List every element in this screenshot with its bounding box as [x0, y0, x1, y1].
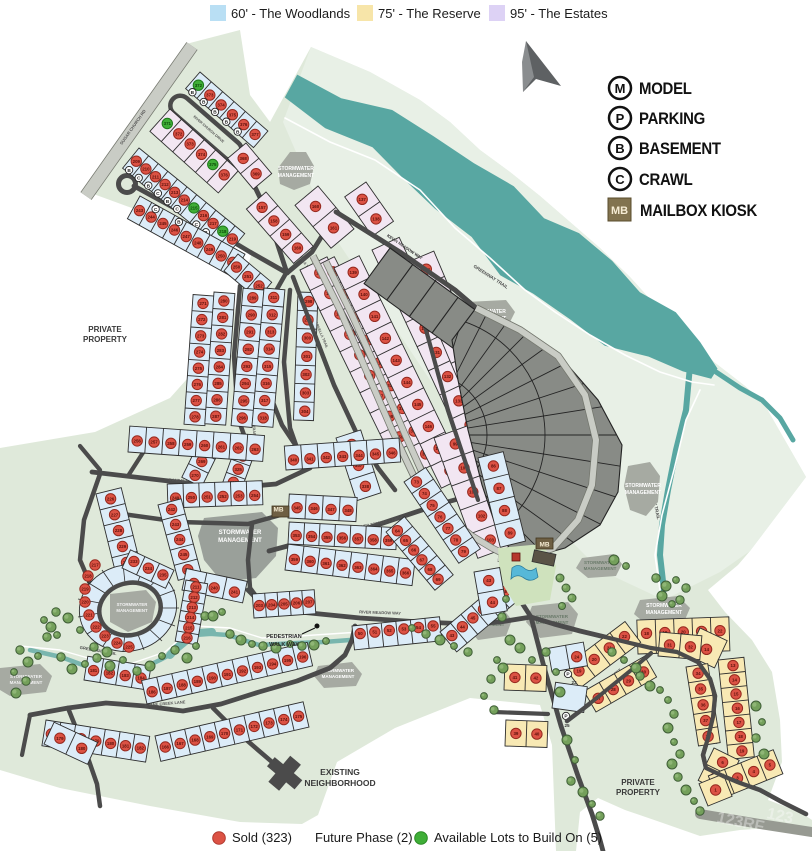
svg-text:372: 372 [175, 131, 183, 136]
svg-text:WALK WAY: WALK WAY [269, 642, 299, 648]
svg-text:36: 36 [701, 702, 706, 707]
svg-text:51: 51 [372, 630, 377, 635]
svg-text:211: 211 [192, 585, 200, 590]
svg-text:141: 141 [371, 314, 379, 319]
svg-text:344: 344 [355, 453, 363, 458]
svg-text:304: 304 [301, 409, 309, 414]
svg-text:STORMWATER: STORMWATER [219, 530, 262, 536]
svg-text:217: 217 [209, 221, 217, 226]
svg-text:275: 275 [195, 366, 203, 371]
svg-text:189: 189 [194, 679, 202, 684]
svg-text:294: 294 [242, 381, 250, 386]
svg-text:375: 375 [229, 112, 237, 117]
svg-text:212: 212 [161, 182, 169, 187]
svg-text:341: 341 [306, 456, 314, 461]
svg-text:244: 244 [176, 537, 184, 542]
svg-text:282: 282 [218, 332, 226, 337]
svg-text:342: 342 [323, 455, 331, 460]
svg-text:78: 78 [453, 538, 458, 543]
svg-text:167: 167 [176, 741, 184, 746]
svg-text:MANAGEMENT: MANAGEMENT [116, 608, 148, 613]
svg-text:287: 287 [212, 414, 220, 419]
svg-text:MANAGEMENT: MANAGEMENT [322, 674, 355, 679]
svg-text:40: 40 [534, 732, 539, 737]
svg-text:PEDESTRIAN: PEDESTRIAN [266, 634, 301, 640]
svg-text:PRIVATE: PRIVATE [88, 325, 122, 334]
svg-text:286: 286 [213, 397, 221, 402]
svg-text:357: 357 [354, 536, 362, 541]
svg-text:55: 55 [431, 624, 436, 629]
svg-text:269: 269 [198, 459, 206, 464]
svg-text:181: 181 [90, 668, 98, 673]
svg-text:175: 175 [295, 714, 303, 719]
svg-text:235: 235 [159, 573, 167, 578]
svg-text:138: 138 [372, 217, 380, 222]
svg-text:PROPERTY: PROPERTY [83, 335, 128, 344]
svg-text:346: 346 [310, 506, 318, 511]
svg-text:86: 86 [491, 464, 496, 469]
svg-text:263: 263 [251, 447, 259, 452]
svg-text:73: 73 [414, 480, 419, 485]
svg-text:C: C [175, 207, 179, 213]
svg-text:65: 65 [403, 538, 408, 543]
svg-text:362: 362 [338, 563, 346, 568]
svg-text:MODEL: MODEL [639, 80, 692, 98]
svg-text:361: 361 [322, 561, 330, 566]
svg-text:Future Phase (2): Future Phase (2) [315, 830, 413, 845]
svg-text:338: 338 [362, 484, 370, 489]
svg-text:173: 173 [265, 721, 273, 726]
svg-text:50: 50 [358, 631, 363, 636]
svg-text:313: 313 [267, 330, 275, 335]
svg-text:160: 160 [294, 246, 302, 251]
svg-text:STORMWATER: STORMWATER [625, 483, 661, 489]
svg-text:B: B [166, 199, 170, 205]
svg-text:377: 377 [251, 132, 259, 137]
svg-text:224: 224 [113, 641, 121, 646]
svg-text:14: 14 [732, 677, 737, 682]
svg-text:142: 142 [382, 336, 390, 341]
svg-text:15: 15 [734, 692, 739, 697]
svg-text:67: 67 [419, 557, 424, 562]
svg-text:B: B [236, 129, 240, 135]
svg-text:251: 251 [204, 495, 212, 500]
svg-text:18: 18 [644, 631, 649, 636]
svg-text:187: 187 [164, 686, 172, 691]
svg-text:31: 31 [667, 643, 672, 648]
svg-text:219: 219 [229, 237, 237, 242]
svg-text:296: 296 [239, 416, 247, 421]
svg-text:318: 318 [260, 415, 268, 420]
svg-text:369: 369 [252, 171, 260, 176]
svg-text:290: 290 [248, 313, 256, 318]
svg-text:C: C [615, 172, 625, 187]
svg-text:302: 302 [302, 372, 310, 377]
svg-text:PARKING: PARKING [639, 110, 705, 128]
svg-text:60' - The Woodlands: 60' - The Woodlands [231, 6, 351, 21]
svg-text:195: 195 [284, 658, 292, 663]
svg-text:88: 88 [502, 508, 507, 513]
svg-text:18: 18 [738, 734, 743, 739]
svg-text:170: 170 [221, 731, 229, 736]
svg-text:376: 376 [221, 172, 229, 177]
svg-text:270: 270 [191, 473, 199, 478]
svg-text:234: 234 [145, 566, 153, 571]
svg-text:186: 186 [148, 689, 156, 694]
svg-text:216: 216 [200, 213, 208, 218]
svg-text:212: 212 [190, 595, 198, 600]
svg-text:79: 79 [461, 549, 466, 554]
svg-text:348: 348 [344, 508, 352, 513]
svg-text:140: 140 [360, 292, 368, 297]
svg-text:301: 301 [303, 354, 311, 359]
svg-text:B: B [177, 220, 181, 226]
svg-text:221: 221 [85, 613, 93, 618]
svg-text:146: 146 [425, 424, 433, 429]
svg-text:281: 281 [219, 315, 227, 320]
svg-text:P: P [616, 111, 625, 126]
svg-text:C: C [156, 191, 160, 197]
svg-text:35: 35 [698, 687, 703, 692]
svg-text:M: M [615, 81, 626, 96]
svg-text:MANAGEMENT: MANAGEMENT [218, 538, 262, 544]
svg-text:192: 192 [239, 669, 247, 674]
svg-text:C: C [154, 207, 158, 213]
svg-text:317: 317 [261, 398, 269, 403]
svg-text:Sold (323): Sold (323) [232, 830, 292, 845]
svg-text:29: 29 [626, 678, 631, 683]
svg-text:375: 375 [209, 162, 217, 167]
svg-text:52: 52 [387, 628, 392, 633]
svg-text:205: 205 [280, 602, 288, 607]
svg-text:191: 191 [224, 672, 232, 677]
svg-text:374: 374 [198, 152, 206, 157]
svg-text:MANAGEMENT: MANAGEMENT [278, 173, 314, 179]
svg-text:243: 243 [172, 522, 180, 527]
svg-text:283: 283 [217, 348, 225, 353]
svg-text:244: 244 [148, 215, 156, 220]
svg-text:32: 32 [688, 644, 693, 649]
svg-text:233: 233 [130, 559, 138, 564]
svg-text:314: 314 [266, 347, 274, 352]
svg-text:353: 353 [293, 533, 301, 538]
svg-text:315: 315 [264, 364, 272, 369]
svg-text:74: 74 [422, 491, 427, 496]
svg-text:228: 228 [115, 528, 123, 533]
svg-text:166: 166 [162, 745, 170, 750]
svg-text:223: 223 [101, 634, 109, 639]
svg-text:356: 356 [339, 536, 347, 541]
svg-text:376: 376 [240, 122, 248, 127]
svg-text:76: 76 [438, 514, 443, 519]
svg-text:PRIVATE: PRIVATE [621, 778, 655, 787]
svg-text:295: 295 [240, 398, 248, 403]
svg-text:194: 194 [269, 662, 277, 667]
svg-text:293: 293 [243, 364, 251, 369]
svg-text:144: 144 [403, 380, 411, 385]
svg-text:CRAWL: CRAWL [639, 171, 693, 189]
svg-text:312: 312 [269, 312, 277, 317]
svg-text:253: 253 [235, 494, 243, 499]
svg-text:Available Lots to Build On (5): Available Lots to Build On (5) [434, 830, 602, 845]
svg-text:273: 273 [197, 333, 205, 338]
svg-text:227: 227 [111, 512, 119, 517]
svg-text:43: 43 [449, 633, 454, 638]
svg-text:53: 53 [401, 627, 406, 632]
svg-text:359: 359 [291, 557, 299, 562]
svg-text:215: 215 [190, 206, 198, 211]
svg-text:206: 206 [293, 601, 301, 606]
svg-text:16: 16 [735, 706, 740, 711]
svg-text:158: 158 [270, 219, 278, 224]
svg-text:39: 39 [513, 731, 518, 736]
svg-text:292: 292 [245, 347, 253, 352]
svg-text:209: 209 [133, 159, 141, 164]
svg-text:MB: MB [273, 507, 283, 514]
svg-text:193: 193 [254, 665, 262, 670]
svg-text:19: 19 [577, 669, 582, 674]
svg-text:STORMWATER: STORMWATER [278, 166, 314, 172]
svg-text:MB: MB [611, 205, 628, 217]
svg-text:37: 37 [703, 718, 708, 723]
svg-text:300: 300 [304, 336, 312, 341]
svg-text:220: 220 [81, 600, 89, 605]
svg-text:347: 347 [327, 507, 335, 512]
svg-text:247: 247 [183, 234, 191, 239]
svg-text:261: 261 [218, 444, 226, 449]
svg-text:44: 44 [490, 600, 495, 605]
svg-text:240: 240 [211, 585, 219, 590]
svg-text:277: 277 [193, 398, 201, 403]
svg-text:262: 262 [235, 446, 243, 451]
svg-text:B: B [127, 168, 131, 174]
svg-text:298: 298 [305, 299, 313, 304]
svg-text:365: 365 [386, 569, 394, 574]
svg-text:226: 226 [107, 496, 115, 501]
svg-text:14: 14 [704, 647, 709, 652]
svg-text:245: 245 [180, 552, 188, 557]
svg-text:372: 372 [195, 83, 203, 88]
svg-text:132: 132 [444, 374, 452, 379]
svg-text:EXISTING: EXISTING [320, 767, 360, 777]
svg-text:66: 66 [411, 548, 416, 553]
svg-text:B: B [225, 119, 229, 125]
svg-text:371: 371 [164, 121, 172, 126]
svg-text:360: 360 [307, 559, 315, 564]
svg-text:41: 41 [512, 675, 517, 680]
svg-text:45: 45 [470, 616, 475, 621]
svg-text:291: 291 [246, 330, 254, 335]
svg-text:B: B [147, 183, 151, 189]
svg-text:257: 257 [150, 440, 158, 445]
svg-text:STORMWATER: STORMWATER [117, 602, 149, 607]
svg-text:77: 77 [445, 526, 450, 531]
svg-text:278: 278 [191, 414, 199, 419]
svg-text:190: 190 [209, 675, 217, 680]
svg-text:252: 252 [219, 494, 227, 499]
svg-text:C: C [137, 176, 141, 182]
svg-text:215: 215 [185, 625, 193, 630]
svg-text:17: 17 [736, 720, 741, 725]
svg-text:254: 254 [251, 493, 259, 498]
svg-text:172: 172 [251, 724, 259, 729]
svg-text:NEIGHBORHOOD: NEIGHBORHOOD [304, 778, 375, 788]
svg-text:20: 20 [592, 657, 597, 662]
svg-text:196: 196 [299, 655, 307, 660]
svg-text:225: 225 [125, 645, 133, 650]
svg-text:182: 182 [137, 746, 145, 751]
svg-text:355: 355 [323, 535, 331, 540]
svg-text:246: 246 [171, 228, 179, 233]
svg-text:245: 245 [159, 221, 167, 226]
svg-text:272: 272 [198, 317, 206, 322]
svg-text:207: 207 [305, 600, 313, 605]
svg-text:183: 183 [122, 673, 130, 678]
svg-text:69: 69 [436, 577, 441, 582]
svg-text:260: 260 [201, 443, 209, 448]
svg-text:280: 280 [220, 299, 228, 304]
svg-text:180: 180 [107, 741, 115, 746]
svg-text:B: B [191, 90, 195, 96]
svg-text:75: 75 [430, 503, 435, 508]
svg-text:34: 34 [696, 671, 701, 676]
svg-text:368: 368 [240, 156, 248, 161]
svg-text:44: 44 [460, 624, 465, 629]
svg-text:218: 218 [84, 574, 92, 579]
svg-text:229: 229 [119, 544, 127, 549]
svg-text:346: 346 [388, 451, 396, 456]
svg-text:MAILBOX KIOSK: MAILBOX KIOSK [640, 202, 758, 220]
svg-text:251: 251 [244, 274, 252, 279]
svg-text:MANAGEMENT: MANAGEMENT [584, 566, 617, 571]
svg-text:366: 366 [402, 571, 410, 576]
svg-text:276: 276 [194, 382, 202, 387]
svg-text:258: 258 [167, 441, 175, 446]
svg-text:137: 137 [359, 197, 367, 202]
svg-text:BASEMENT: BASEMENT [639, 140, 721, 158]
svg-text:188: 188 [179, 682, 187, 687]
svg-text:213: 213 [171, 190, 179, 195]
svg-text:180: 180 [78, 746, 86, 751]
svg-text:203: 203 [256, 603, 264, 608]
svg-text:340: 340 [290, 458, 298, 463]
svg-text:216: 216 [183, 636, 191, 641]
svg-text:STORMWATER: STORMWATER [646, 603, 682, 609]
svg-text:179: 179 [56, 736, 64, 741]
svg-text:219: 219 [81, 587, 89, 592]
svg-text:252: 252 [255, 284, 263, 289]
svg-text:325: 325 [235, 467, 243, 472]
svg-text:42: 42 [533, 676, 538, 681]
svg-text:174: 174 [280, 717, 288, 722]
svg-text:95' - The Estates: 95' - The Estates [510, 6, 608, 21]
svg-text:75' - The Reserve: 75' - The Reserve [378, 6, 481, 21]
svg-text:68: 68 [428, 567, 433, 572]
svg-text:19: 19 [739, 749, 744, 754]
svg-text:204: 204 [268, 602, 276, 607]
svg-text:373: 373 [206, 93, 214, 98]
svg-text:64: 64 [395, 528, 400, 533]
svg-text:PROPERTY: PROPERTY [616, 788, 661, 797]
svg-text:160: 160 [312, 204, 320, 209]
svg-text:B: B [213, 110, 217, 116]
svg-text:139: 139 [350, 270, 358, 275]
svg-text:243: 243 [136, 208, 144, 213]
svg-text:MANAGEMENT: MANAGEMENT [625, 490, 661, 496]
svg-text:259: 259 [184, 442, 192, 447]
svg-text:249: 249 [206, 247, 214, 252]
svg-text:B: B [615, 141, 624, 156]
svg-text:250: 250 [218, 254, 226, 259]
svg-text:345: 345 [372, 452, 380, 457]
svg-text:250: 250 [188, 495, 196, 500]
svg-text:157: 157 [258, 205, 266, 210]
svg-text:284: 284 [216, 364, 224, 369]
svg-text:364: 364 [370, 567, 378, 572]
svg-text:MB: MB [539, 542, 549, 549]
svg-text:354: 354 [308, 534, 316, 539]
svg-text:168: 168 [191, 738, 199, 743]
svg-text:89: 89 [508, 531, 513, 536]
svg-text:181: 181 [122, 743, 130, 748]
svg-text:214: 214 [181, 198, 189, 203]
svg-text:171: 171 [236, 728, 244, 733]
svg-text:374: 374 [217, 103, 225, 108]
svg-text:211: 211 [152, 174, 160, 179]
svg-text:222: 222 [92, 625, 100, 630]
svg-text:25: 25 [564, 723, 570, 728]
svg-text:373: 373 [186, 142, 194, 147]
svg-text:MANAGEMENT: MANAGEMENT [646, 610, 682, 616]
svg-text:22: 22 [622, 634, 627, 639]
svg-text:303: 303 [302, 391, 310, 396]
svg-text:214: 214 [187, 615, 195, 620]
svg-text:210: 210 [142, 167, 150, 172]
svg-text:22: 22 [718, 628, 723, 633]
svg-text:242: 242 [168, 507, 176, 512]
svg-text:145: 145 [414, 402, 422, 407]
svg-text:256: 256 [134, 439, 142, 444]
svg-text:23: 23 [571, 680, 577, 685]
svg-text:363: 363 [354, 565, 362, 570]
svg-text:102: 102 [478, 514, 486, 519]
svg-text:13: 13 [731, 663, 736, 668]
svg-text:311: 311 [270, 295, 278, 300]
svg-text:343: 343 [339, 454, 347, 459]
svg-text:143: 143 [393, 358, 401, 363]
svg-text:289: 289 [249, 295, 257, 300]
svg-text:316: 316 [263, 381, 271, 386]
svg-text:213: 213 [189, 605, 197, 610]
svg-text:24: 24 [574, 654, 579, 659]
svg-text:345: 345 [293, 505, 301, 510]
svg-text:43: 43 [486, 578, 491, 583]
svg-text:241: 241 [231, 590, 239, 595]
svg-text:358: 358 [370, 537, 378, 542]
svg-text:87: 87 [497, 486, 502, 491]
svg-text:274: 274 [196, 350, 204, 355]
svg-text:248: 248 [194, 241, 202, 246]
svg-text:161: 161 [330, 225, 338, 230]
svg-text:217: 217 [91, 563, 99, 568]
svg-text:285: 285 [214, 381, 222, 386]
svg-text:159: 159 [282, 232, 290, 237]
svg-text:271: 271 [199, 301, 207, 306]
svg-text:218: 218 [219, 229, 227, 234]
svg-text:54: 54 [416, 625, 421, 630]
svg-text:B: B [202, 100, 206, 106]
svg-text:169: 169 [206, 734, 214, 739]
